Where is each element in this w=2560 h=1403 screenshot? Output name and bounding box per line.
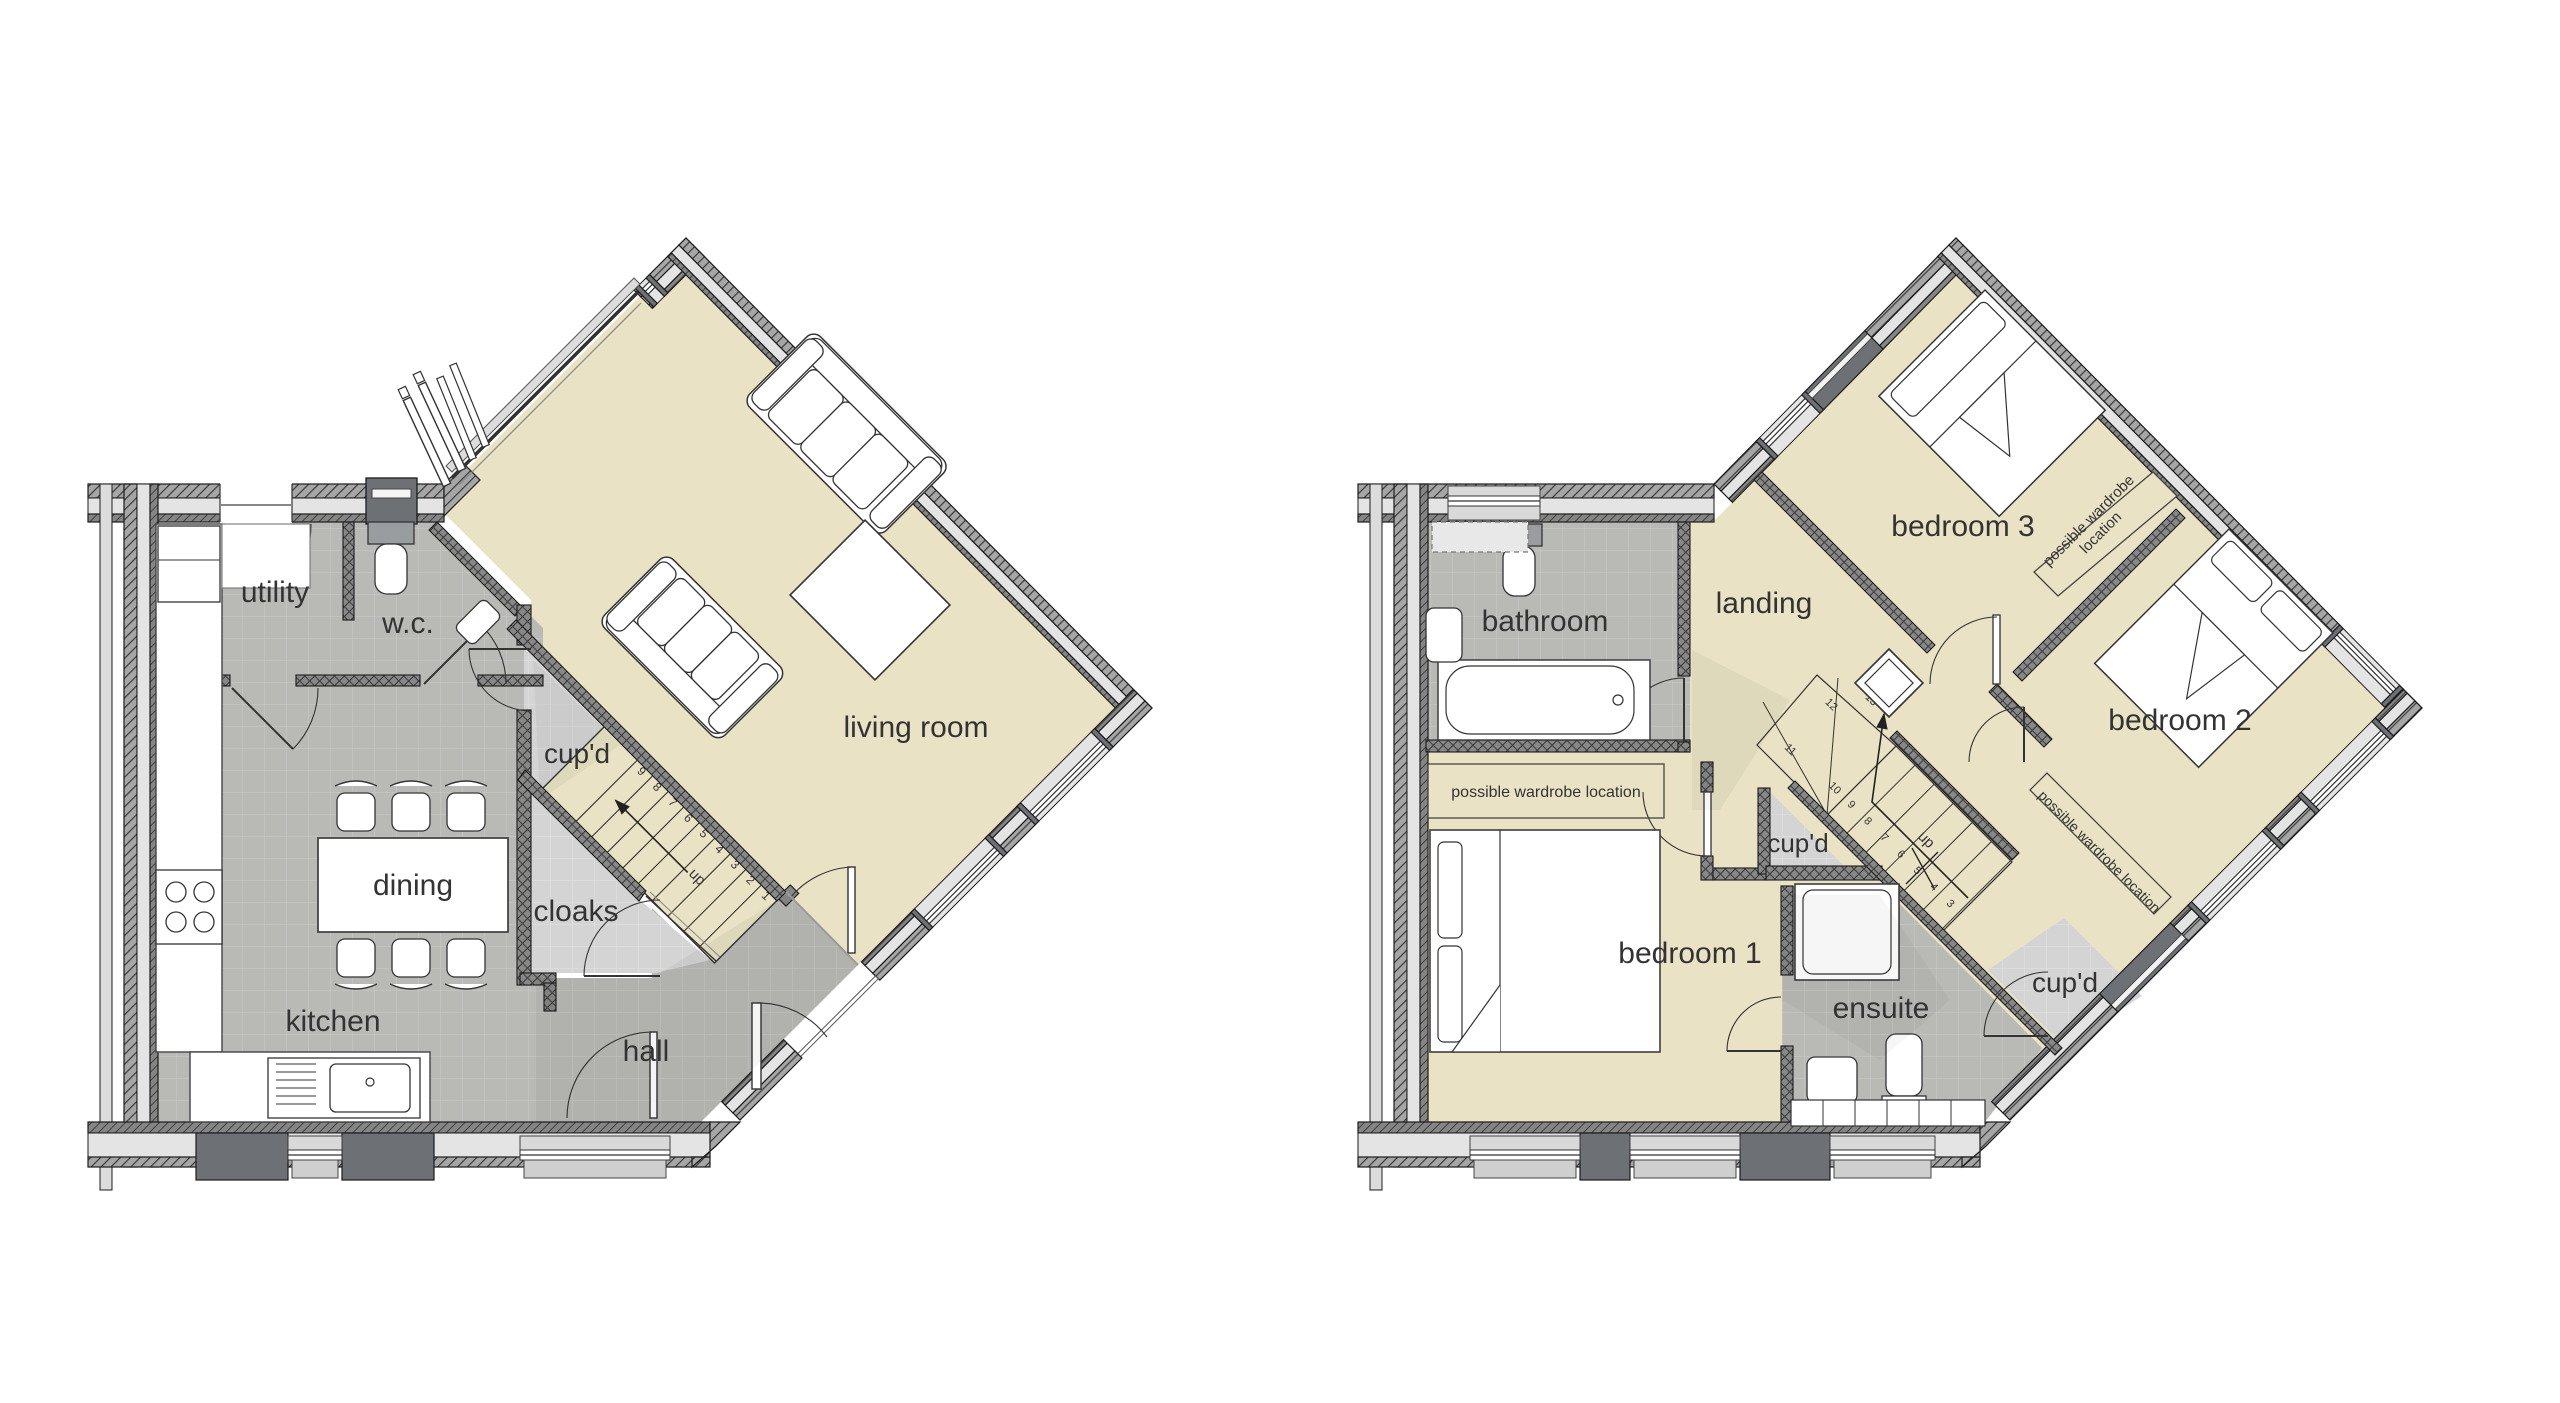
svg-text:w.c.: w.c. xyxy=(381,607,434,640)
svg-text:cloaks: cloaks xyxy=(533,895,618,928)
svg-text:bedroom 1: bedroom 1 xyxy=(1618,937,1761,970)
svg-text:landing: landing xyxy=(1716,587,1813,620)
svg-text:bedroom 3: bedroom 3 xyxy=(1891,510,2034,543)
svg-text:possible wardrobe location: possible wardrobe location xyxy=(1451,784,1640,801)
svg-text:ensuite: ensuite xyxy=(1833,992,1930,1025)
svg-text:bathroom: bathroom xyxy=(1482,605,1609,638)
svg-text:cup'd: cup'd xyxy=(2032,967,2098,998)
svg-text:bedroom 2: bedroom 2 xyxy=(2108,704,2251,737)
svg-text:utility: utility xyxy=(241,576,309,609)
svg-text:dining: dining xyxy=(373,869,453,902)
svg-text:hall: hall xyxy=(623,1035,670,1068)
svg-text:living room: living room xyxy=(843,711,988,744)
svg-text:cup'd: cup'd xyxy=(544,738,610,769)
svg-text:cup'd: cup'd xyxy=(1767,828,1828,858)
svg-text:kitchen: kitchen xyxy=(285,1005,380,1038)
